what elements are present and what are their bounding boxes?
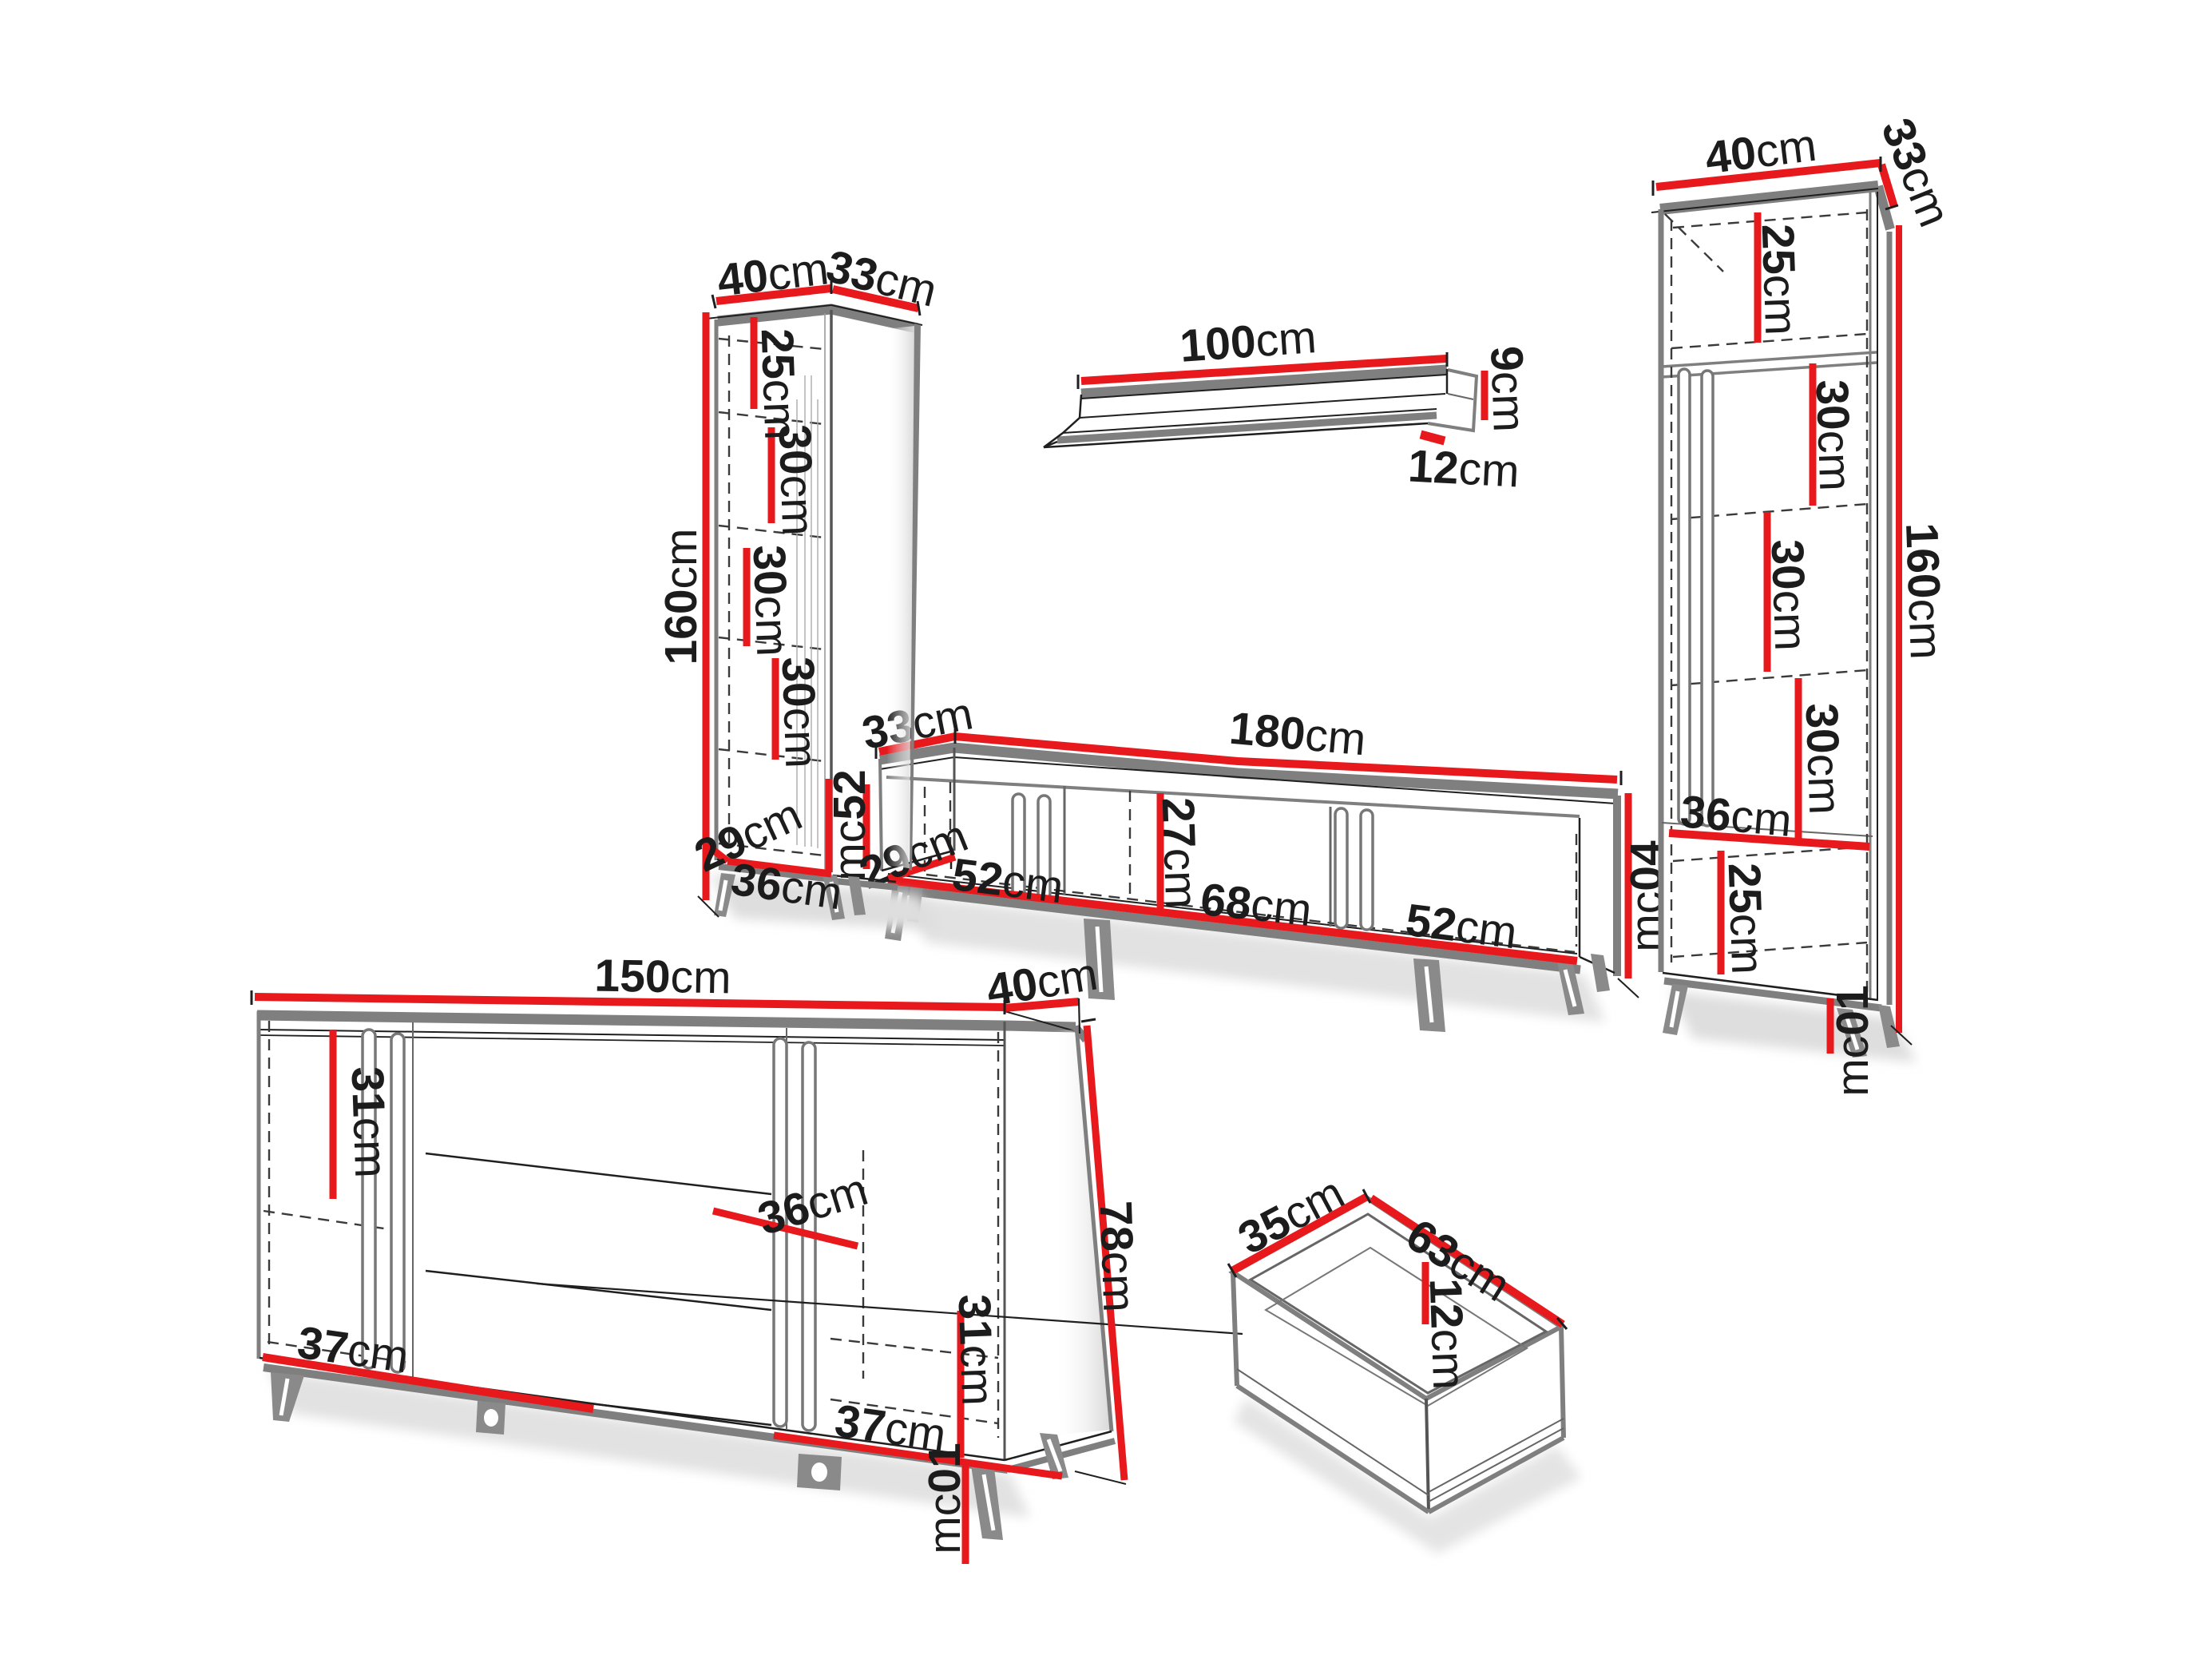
svg-text:36cm: 36cm — [1679, 786, 1794, 847]
svg-text:30cm: 30cm — [1762, 538, 1817, 652]
svg-text:78cm: 78cm — [1090, 1200, 1145, 1313]
svg-text:9cm: 9cm — [1481, 345, 1535, 433]
svg-text:12cm: 12cm — [1420, 1277, 1475, 1391]
svg-text:27cm: 27cm — [1152, 796, 1207, 910]
svg-text:160cm: 160cm — [656, 528, 707, 665]
svg-text:31cm: 31cm — [342, 1066, 397, 1179]
svg-text:30cm: 30cm — [1796, 702, 1851, 816]
svg-text:31cm: 31cm — [949, 1293, 1004, 1407]
svg-text:30cm: 30cm — [772, 656, 827, 769]
svg-text:30cm: 30cm — [769, 423, 824, 537]
svg-text:12cm: 12cm — [1407, 440, 1521, 497]
svg-text:mc01: mc01 — [919, 1443, 970, 1554]
svg-text:30cm: 30cm — [1806, 379, 1861, 492]
svg-text:25cm: 25cm — [1718, 862, 1774, 975]
svg-text:100cm: 100cm — [1178, 312, 1318, 372]
svg-text:mc01: mc01 — [1827, 985, 1878, 1096]
svg-text:25cm: 25cm — [1752, 223, 1807, 336]
svg-text:150cm: 150cm — [594, 951, 731, 1004]
svg-text:mc04: mc04 — [1621, 840, 1672, 952]
svg-text:160cm: 160cm — [1896, 522, 1952, 660]
svg-text:30cm: 30cm — [743, 544, 799, 657]
